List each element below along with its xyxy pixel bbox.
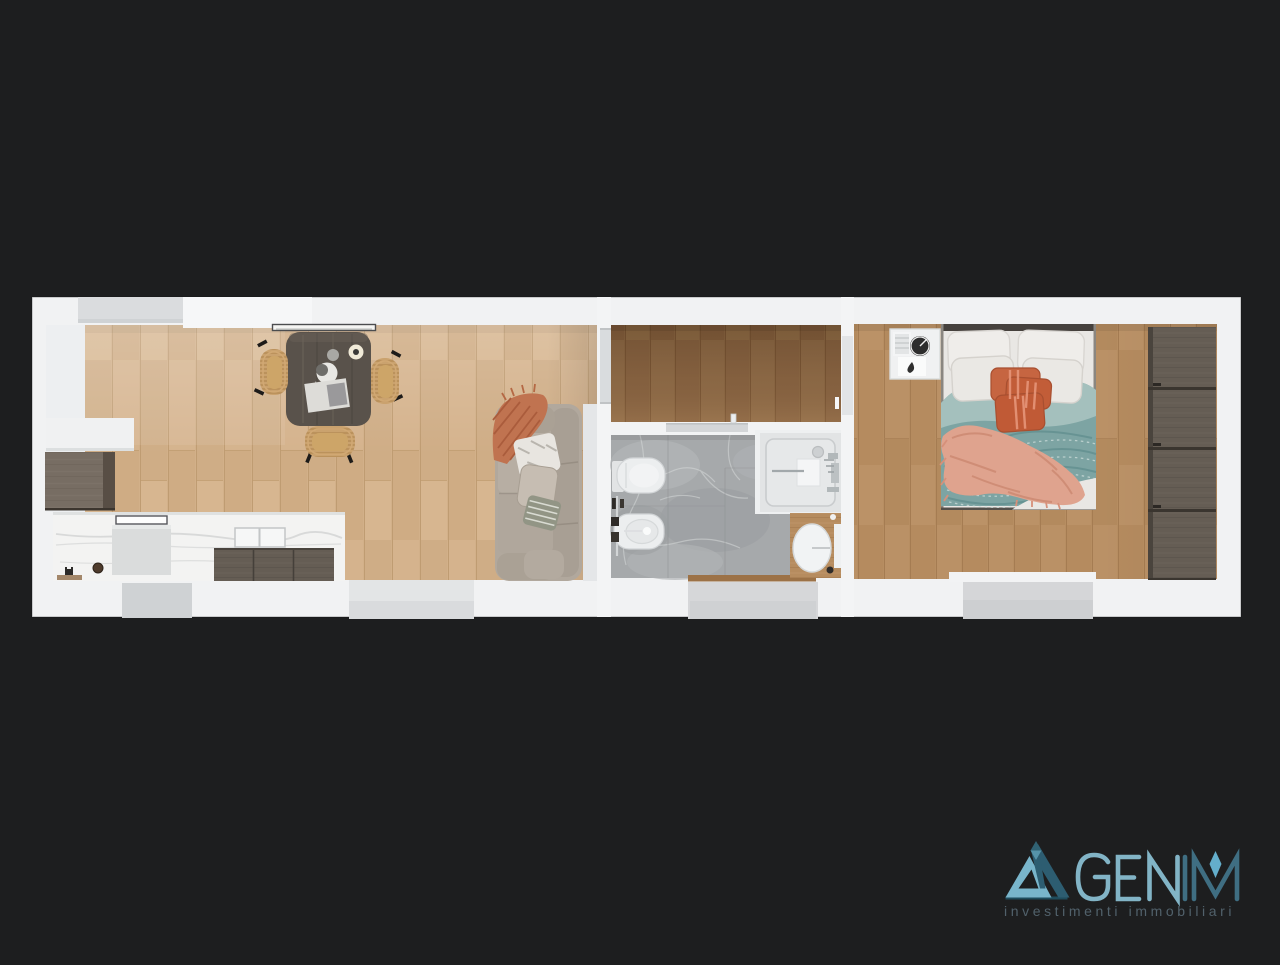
svg-text:investimenti immobiliari: investimenti immobiliari: [1004, 903, 1235, 919]
